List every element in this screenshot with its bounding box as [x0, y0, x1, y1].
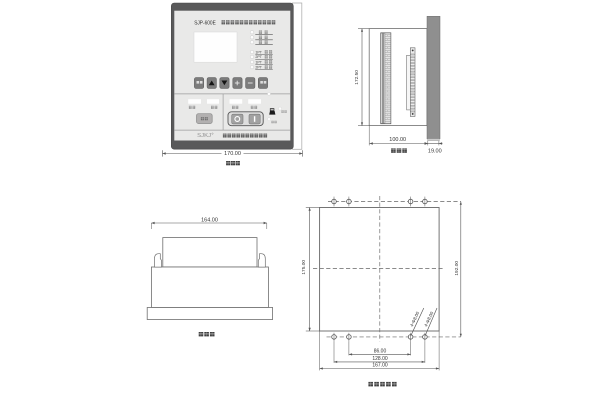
- svg-text:19.00: 19.00: [428, 148, 442, 154]
- svg-text:164.00: 164.00: [201, 217, 218, 223]
- svg-text:172.50: 172.50: [354, 70, 360, 85]
- svg-text:2PT: 2PT: [255, 55, 262, 59]
- svg-text:128.00: 128.00: [372, 356, 388, 362]
- svg-text:1PT: 1PT: [255, 60, 262, 64]
- svg-text:SJP-600E: SJP-600E: [194, 20, 216, 26]
- svg-text:SJKJ: SJKJ: [197, 133, 211, 139]
- svg-text:170.00: 170.00: [224, 151, 241, 157]
- svg-text:86.00: 86.00: [374, 349, 387, 355]
- svg-text:100.00: 100.00: [389, 137, 406, 143]
- svg-text:2PT: 2PT: [255, 65, 262, 69]
- svg-text:1PT: 1PT: [255, 50, 262, 54]
- svg-text:192.00: 192.00: [454, 261, 460, 276]
- svg-text:175.00: 175.00: [301, 260, 307, 275]
- svg-text:167.00: 167.00: [372, 363, 388, 369]
